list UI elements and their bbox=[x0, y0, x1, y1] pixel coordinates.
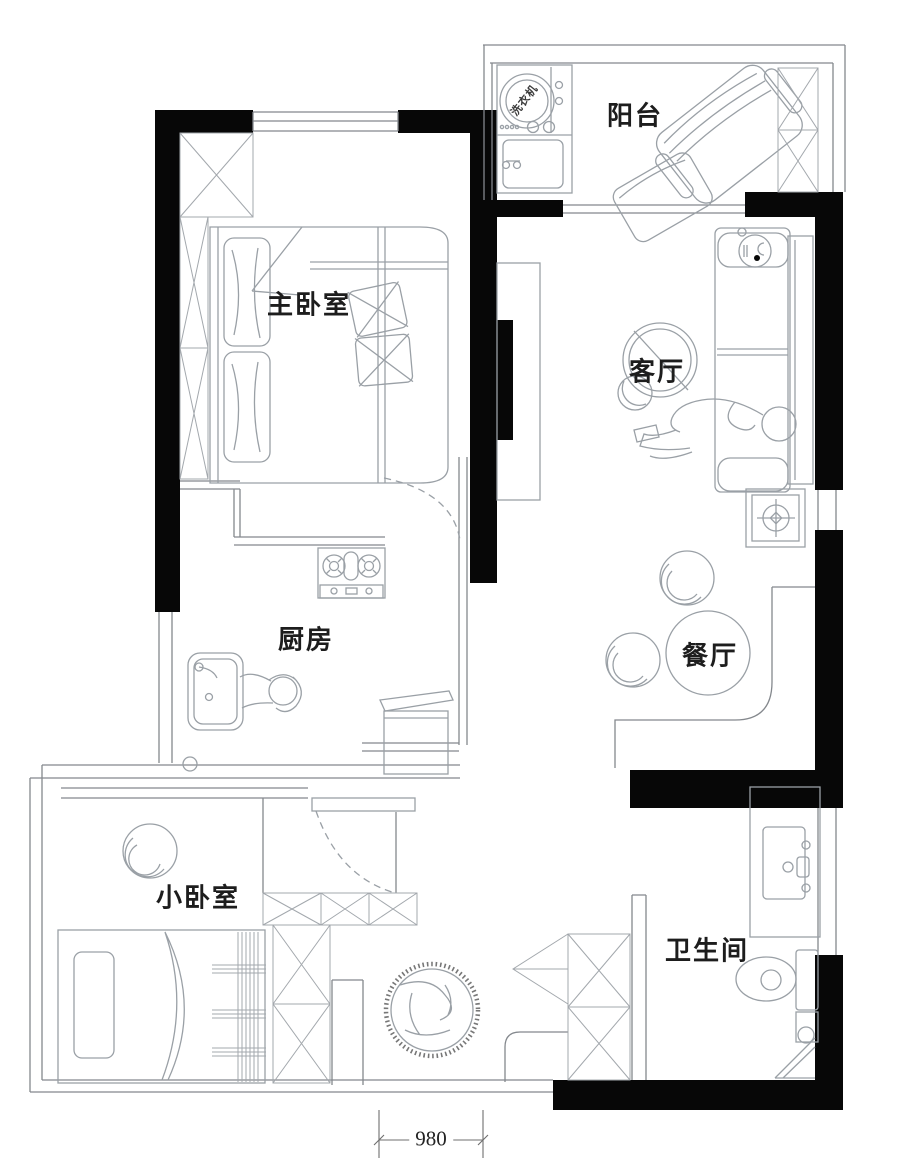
tub-chair bbox=[123, 824, 177, 878]
gas-stove bbox=[318, 548, 385, 598]
window-kitchen bbox=[159, 612, 172, 763]
laundry-sink bbox=[503, 140, 564, 188]
shoe-cabinet bbox=[568, 934, 630, 1080]
lidded-appliance bbox=[380, 691, 453, 774]
living-room-label: 客厅 bbox=[629, 352, 685, 389]
entry-furniture bbox=[513, 934, 630, 1080]
decor-rug bbox=[386, 964, 478, 1056]
sofa-detail bbox=[738, 228, 746, 236]
person-cooking bbox=[240, 674, 301, 711]
wardrobe bbox=[180, 133, 253, 479]
tv-screen bbox=[497, 320, 513, 440]
kitchen-sink bbox=[188, 653, 243, 730]
door-swing-small-bedroom bbox=[316, 811, 392, 892]
floor-plan-drawing bbox=[0, 0, 900, 1164]
pipe bbox=[183, 757, 197, 771]
balcony-label: 阳台 bbox=[607, 96, 663, 133]
kitchen-furniture bbox=[183, 548, 453, 774]
dining-chair bbox=[660, 551, 714, 605]
wardrobe-small-bedroom bbox=[263, 893, 417, 1085]
dining-furniture bbox=[606, 551, 750, 695]
washing-machine bbox=[497, 65, 572, 193]
door-swing-master-bedroom bbox=[384, 478, 460, 540]
entry-diamond bbox=[513, 934, 568, 1004]
floor-speaker bbox=[746, 489, 805, 547]
doors bbox=[312, 478, 460, 892]
serving-tray bbox=[739, 235, 771, 267]
balcony-sliding-door bbox=[563, 205, 745, 213]
floor-plan: 阳台 主卧室 客厅 厨房 餐厅 小卧室 卫生间 洗衣机 980 bbox=[0, 0, 900, 1164]
door-leaf-small-bedroom bbox=[312, 798, 415, 811]
bathroom-partition bbox=[632, 895, 646, 1080]
dining-chair bbox=[606, 633, 660, 687]
window-master-bedroom bbox=[253, 112, 398, 131]
master-bedroom-label: 主卧室 bbox=[267, 285, 351, 322]
window-balcony bbox=[483, 45, 845, 192]
throw-pillow bbox=[355, 334, 413, 387]
bathroom-label: 卫生间 bbox=[665, 931, 749, 968]
small-bedroom-furniture bbox=[58, 824, 478, 1085]
dining-floor-border bbox=[615, 587, 815, 768]
window-bathroom bbox=[818, 808, 836, 955]
bathroom-vanity bbox=[750, 787, 820, 937]
balcony-cabinet bbox=[778, 68, 818, 192]
entry-width-dimension: 980 bbox=[409, 1127, 453, 1152]
kitchen-label: 厨房 bbox=[278, 620, 334, 657]
entry-floor-border bbox=[505, 1032, 568, 1082]
small-bedroom-label: 小卧室 bbox=[156, 878, 240, 915]
dining-room-label: 餐厅 bbox=[682, 636, 738, 673]
single-bed bbox=[58, 930, 266, 1083]
corner-mop-pool bbox=[775, 1012, 818, 1078]
window-living bbox=[818, 490, 836, 530]
double-bed bbox=[210, 227, 448, 483]
